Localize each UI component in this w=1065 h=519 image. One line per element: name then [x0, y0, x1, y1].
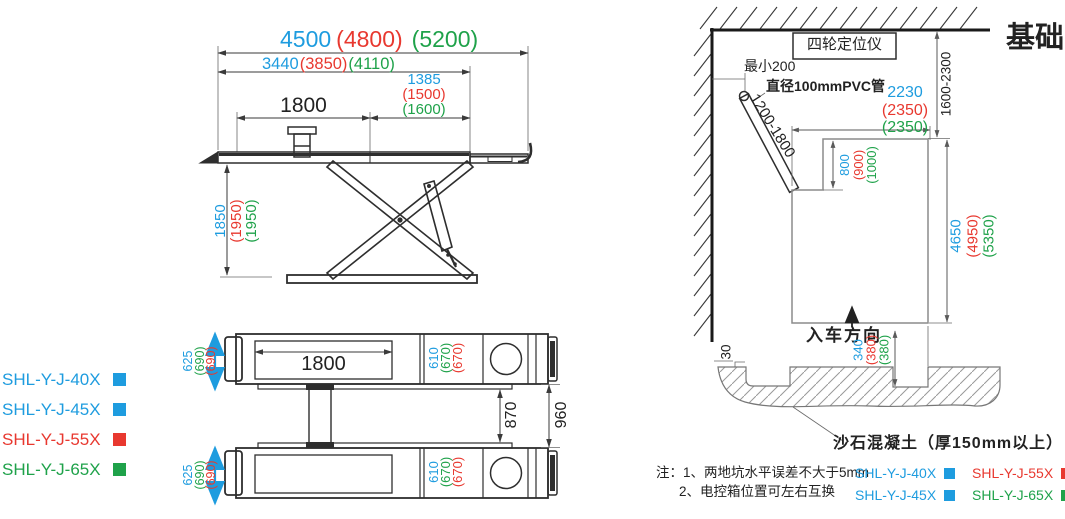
dim-value-55x: (690): [206, 460, 218, 489]
legend-label: SHL-Y-J-45X: [855, 488, 936, 503]
aligner-label: 四轮定位仪: [793, 37, 896, 53]
dim-pit-width: 2230 (2350) (2350): [872, 84, 938, 137]
dim-pit-length: 4650 (4950) (5350): [948, 214, 998, 257]
dim-value-65x: (1950): [244, 199, 260, 242]
model-label: SHL-Y-J-55X: [2, 431, 101, 449]
legend-item-55x: SHL-Y-J-55X: [972, 466, 1065, 481]
note-line-1: 注：1、两地坑水平误差不大于5mm: [656, 466, 869, 480]
legend-color-swatch: [944, 468, 955, 479]
min-clearance-label: 最小200: [744, 59, 795, 74]
legend-color-swatch: [1061, 468, 1065, 479]
dim-value-55x: (4800): [336, 27, 402, 51]
dim-platform-width-bottom: 625 (690) (690): [183, 460, 218, 489]
dim-value-40x: 2230: [872, 84, 938, 102]
dim-value-40x: 1385: [396, 72, 452, 87]
dim-value-40x: 800: [838, 146, 852, 184]
legend-label: SHL-Y-J-40X: [855, 466, 936, 481]
model-color-swatch: [113, 403, 126, 416]
dim-right-platform: 1385 (1500) (1600): [396, 72, 452, 117]
model-color-swatch: [113, 433, 126, 446]
dim-value-55x: (690): [206, 346, 218, 375]
dim-lift-height: 1850 (1950) (1950): [213, 199, 260, 242]
dim-value-40x: 4500: [280, 27, 331, 51]
legend-item-40x: SHL-Y-J-40X: [855, 466, 955, 481]
legend-label: SHL-Y-J-55X: [972, 466, 1053, 481]
dim-outer-gap: 960: [553, 402, 571, 429]
dim-value-55x: (1950): [228, 199, 244, 242]
concrete-label: 沙石混凝土（厚150mm以上）: [833, 436, 1063, 453]
dim-tread-width-bottom: 610 (670) (670): [428, 457, 464, 487]
dim-wall-distance: 1600-2300: [939, 52, 954, 117]
legend-item-65x: SHL-Y-J-65X: [972, 488, 1065, 503]
dim-tread-length-top: 1800: [255, 354, 392, 375]
legend-color-swatch: [1061, 490, 1065, 501]
dim-inner-gap: 870: [503, 402, 521, 429]
dim-value-55x: (3850): [300, 56, 348, 73]
dim-step-depth: 340 (380) (380): [852, 335, 891, 365]
dim-value-55x: (900): [851, 146, 865, 184]
dim-value-55x: (1500): [396, 87, 452, 102]
dim-box-depth: 800 (900) (1000): [838, 146, 879, 184]
scissor-lift-technical-drawing: 4500 (4800) (5200) 3440 (3850) (4110) 13…: [0, 0, 1065, 519]
dim-value-65x: (2350): [872, 119, 938, 137]
legend-item-45x: SHL-Y-J-45X: [855, 488, 955, 503]
model-color-swatch: [113, 373, 126, 386]
dim-value-55x: (670): [452, 457, 464, 487]
dim-value-65x: (4110): [348, 56, 394, 73]
pvc-pipe-label: 直径100mmPVC管: [766, 79, 885, 94]
dim-value-55x: (4950): [965, 214, 982, 257]
model-item-45x: SHL-Y-J-45X: [2, 401, 126, 419]
model-item-40x: SHL-Y-J-40X: [2, 371, 126, 389]
side-view-drawing: [200, 46, 531, 283]
dim-inner-length: 3440 (3850) (4110): [262, 56, 395, 73]
legend-color-swatch: [944, 490, 955, 501]
dim-platform-width-top: 625 (690) (690): [183, 346, 218, 375]
model-item-65x: SHL-Y-J-65X: [2, 461, 126, 479]
model-label: SHL-Y-J-45X: [2, 401, 101, 419]
dim-value-40x: 1850: [213, 199, 229, 242]
dim-value-65x: (380): [878, 335, 891, 365]
model-item-55x: SHL-Y-J-55X: [2, 431, 126, 449]
model-label: SHL-Y-J-65X: [2, 461, 101, 479]
dim-value-55x: (670): [452, 343, 464, 373]
dim-value-65x: (1000): [865, 146, 879, 184]
model-color-swatch: [113, 463, 126, 476]
legend-label: SHL-Y-J-65X: [972, 488, 1053, 503]
dim-tread-width-top: 610 (670) (670): [428, 343, 464, 373]
note-line-2: 2、电控箱位置可左右互换: [679, 485, 835, 499]
dim-value-65x: (1600): [396, 102, 452, 117]
dim-value-65x: (5350): [981, 214, 998, 257]
dim-edge-step: 30: [719, 344, 734, 359]
dim-value-65x: (5200): [412, 27, 478, 51]
dim-tread-length-side: 1800: [237, 95, 370, 117]
dim-value-55x: (2350): [872, 102, 938, 120]
dim-value-40x: 4650: [948, 214, 965, 257]
model-label: SHL-Y-J-40X: [2, 371, 101, 389]
drawing-title: 基础图: [1006, 22, 1040, 54]
dim-value-40x: 3440: [262, 56, 299, 73]
dim-total-length: 4500 (4800) (5200): [280, 27, 478, 51]
